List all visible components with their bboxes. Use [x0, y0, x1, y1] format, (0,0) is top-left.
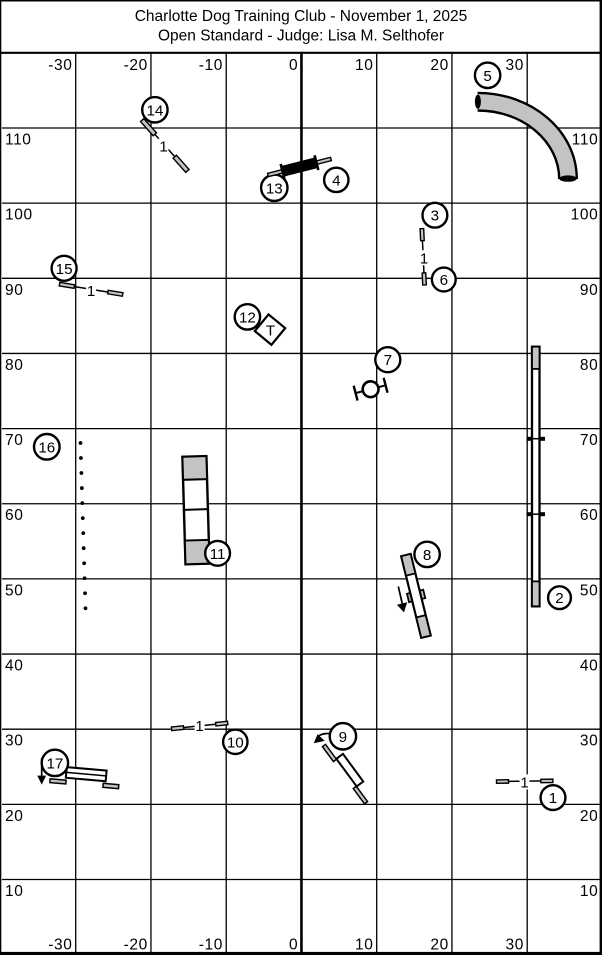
svg-text:100: 100	[5, 207, 33, 224]
svg-text:14: 14	[146, 102, 163, 119]
svg-text:-20: -20	[124, 936, 148, 953]
svg-text:9: 9	[339, 729, 347, 746]
svg-text:T: T	[266, 323, 275, 340]
svg-text:20: 20	[430, 57, 448, 74]
svg-text:-20: -20	[124, 57, 148, 74]
svg-text:40: 40	[5, 658, 23, 675]
svg-text:70: 70	[580, 432, 598, 449]
svg-text:80: 80	[580, 357, 598, 374]
svg-text:1: 1	[549, 790, 557, 807]
svg-text:60: 60	[580, 507, 598, 524]
svg-text:15: 15	[56, 261, 73, 278]
svg-text:1: 1	[195, 718, 203, 735]
svg-text:16: 16	[38, 439, 55, 456]
svg-text:80: 80	[5, 357, 23, 374]
svg-text:110: 110	[5, 132, 32, 149]
svg-text:60: 60	[5, 507, 23, 524]
svg-text:20: 20	[580, 808, 598, 825]
svg-text:5: 5	[483, 68, 491, 85]
svg-text:-10: -10	[199, 57, 223, 74]
svg-text:-10: -10	[199, 936, 223, 953]
svg-text:4: 4	[332, 172, 340, 189]
svg-text:0: 0	[289, 936, 298, 953]
svg-text:40: 40	[580, 658, 598, 675]
svg-text:20: 20	[5, 808, 23, 825]
svg-text:30: 30	[506, 57, 524, 74]
svg-text:11: 11	[210, 546, 226, 563]
svg-text:Charlotte Dog Training Club -: Charlotte Dog Training Club - November 1…	[135, 8, 468, 25]
svg-text:1: 1	[87, 283, 95, 300]
svg-text:90: 90	[5, 282, 23, 299]
svg-text:110: 110	[572, 132, 599, 149]
svg-text:90: 90	[580, 282, 598, 299]
svg-text:10: 10	[355, 936, 373, 953]
svg-text:10: 10	[5, 883, 23, 900]
svg-text:8: 8	[423, 547, 431, 564]
svg-text:3: 3	[431, 208, 439, 225]
svg-text:1: 1	[420, 250, 428, 267]
svg-text:70: 70	[5, 432, 23, 449]
svg-text:-30: -30	[48, 57, 72, 74]
svg-text:1: 1	[159, 139, 167, 156]
svg-text:2: 2	[555, 590, 563, 607]
svg-text:Open Standard - Judge: Lisa M.: Open Standard - Judge: Lisa M. Selthofer	[158, 28, 444, 45]
svg-text:20: 20	[430, 936, 448, 953]
svg-text:10: 10	[355, 57, 373, 74]
svg-text:30: 30	[580, 733, 598, 750]
svg-text:17: 17	[46, 755, 63, 772]
svg-text:-30: -30	[48, 936, 72, 953]
svg-text:13: 13	[266, 180, 283, 197]
svg-text:100: 100	[571, 207, 599, 224]
svg-text:10: 10	[227, 734, 244, 751]
svg-text:12: 12	[239, 309, 256, 326]
svg-text:30: 30	[506, 936, 524, 953]
svg-text:50: 50	[580, 582, 598, 599]
svg-text:1: 1	[520, 774, 528, 791]
svg-text:6: 6	[440, 272, 448, 289]
svg-text:10: 10	[580, 883, 598, 900]
svg-text:30: 30	[5, 733, 23, 750]
svg-text:50: 50	[5, 582, 23, 599]
svg-text:7: 7	[384, 352, 392, 369]
svg-text:0: 0	[289, 57, 298, 74]
